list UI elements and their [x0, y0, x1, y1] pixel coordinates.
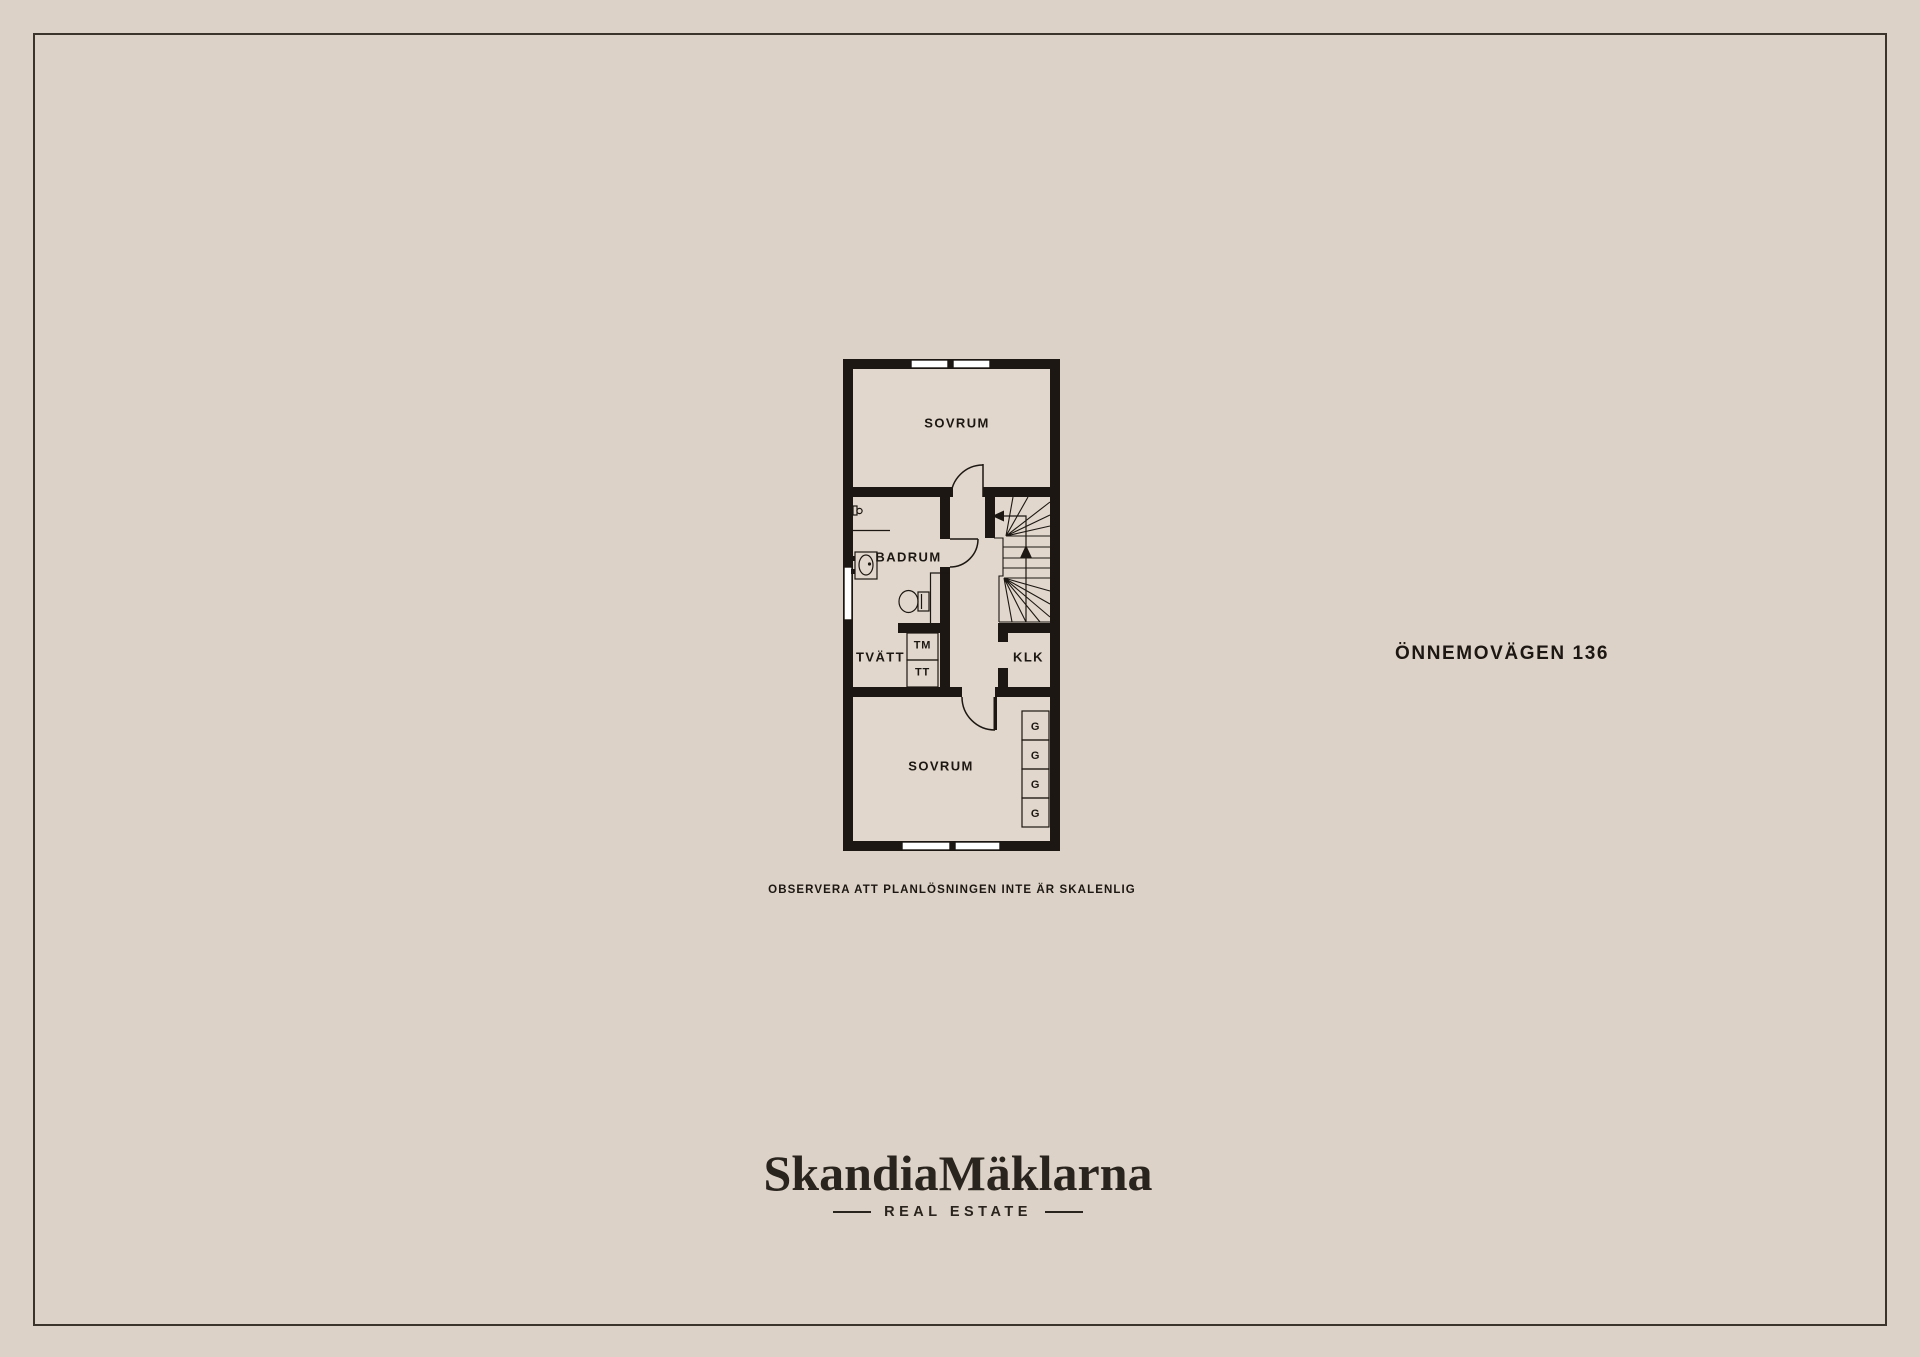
label-klk: KLK — [1013, 650, 1044, 665]
window-icon — [844, 567, 852, 620]
label-sovrum-top: SOVRUM — [924, 416, 989, 431]
tagline-text: REAL ESTATE — [884, 1204, 1032, 1220]
label-wardrobe: G — [1031, 779, 1040, 791]
label-tt: TT — [915, 667, 930, 679]
label-wardrobe: G — [1031, 750, 1040, 762]
window-icon — [911, 360, 948, 368]
floorplan-drawing: SOVRUM BADRUM TVÄTT TM TT KLK SOVRUM G G… — [843, 359, 1060, 851]
label-wardrobe: G — [1031, 808, 1040, 820]
label-tm: TM — [914, 640, 931, 652]
floor-area — [843, 359, 1060, 851]
skandiamaklarna-logo: SkandiaMäklarna — [758, 1144, 1158, 1202]
label-badrum: BADRUM — [875, 550, 941, 565]
window-icon — [955, 842, 1000, 850]
property-address: ÖNNEMOVÄGEN 136 — [1395, 643, 1609, 665]
label-tvatt: TVÄTT — [856, 650, 905, 665]
window-icon — [953, 360, 990, 368]
scale-disclaimer: OBSERVERA ATT PLANLÖSNINGEN INTE ÄR SKAL… — [752, 884, 1152, 896]
tagline-rule-right — [1045, 1211, 1083, 1213]
floorplan-page: { "page": { "background": "#dcd2c7", "fr… — [0, 0, 1920, 1357]
label-sovrum-bottom: SOVRUM — [908, 759, 973, 774]
logo-tagline: REAL ESTATE — [758, 1204, 1158, 1220]
tagline-rule-left — [833, 1211, 871, 1213]
window-icon — [902, 842, 950, 850]
label-wardrobe: G — [1031, 721, 1040, 733]
